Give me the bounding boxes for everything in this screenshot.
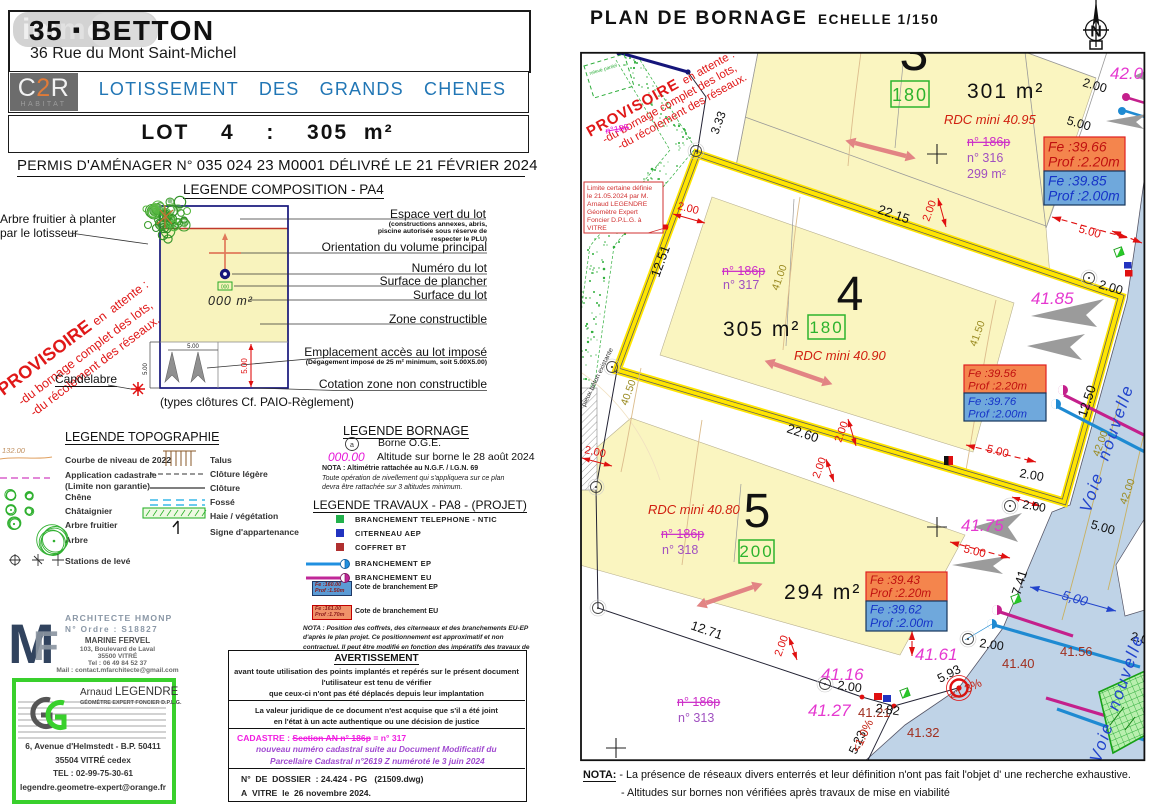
svg-text:5.00: 5.00 (240, 358, 249, 374)
svg-text:41.32: 41.32 (907, 725, 940, 740)
svg-text:200: 200 (739, 542, 773, 561)
svg-text:Fe :39.56: Fe :39.56 (968, 368, 1017, 380)
svg-text:n° 186p: n° 186p (661, 527, 704, 541)
svg-text:pieux béton existante: pieux béton existante (581, 347, 616, 408)
svg-text:2.00: 2.00 (979, 636, 1005, 653)
svg-text:RDC mini 40.80: RDC mini 40.80 (648, 502, 741, 517)
svg-text:Prof :2.00m: Prof :2.00m (870, 616, 933, 630)
svg-text:5.00: 5.00 (143, 363, 149, 375)
svg-text:41.75: 41.75 (961, 516, 1004, 535)
svg-text:12.71: 12.71 (689, 618, 725, 643)
svg-text:5.00: 5.00 (962, 543, 987, 560)
svg-text:Prof :2.20m: Prof :2.20m (968, 380, 1027, 392)
svg-text:RDC mini 40.90: RDC mini 40.90 (794, 348, 887, 363)
svg-text:2.00: 2.00 (811, 456, 830, 480)
svg-text:n° 186p: n° 186p (967, 135, 1010, 149)
svg-text:Limite certaine définie: Limite certaine définie (587, 185, 652, 192)
svg-text:2.00: 2.00 (773, 634, 792, 658)
svg-text:Fe :39.43: Fe :39.43 (870, 573, 920, 587)
svg-text:VITRE: VITRE (587, 225, 607, 232)
svg-text:299 m²: 299 m² (967, 167, 1006, 181)
svg-text:N: N (1090, 24, 1102, 41)
svg-text:Arnaud LEGENDRE: Arnaud LEGENDRE (587, 201, 648, 208)
svg-text:5: 5 (744, 485, 771, 538)
svg-text:132.00: 132.00 (2, 446, 26, 455)
svg-text:41.40: 41.40 (1002, 656, 1035, 671)
svg-text:Fe :39.62: Fe :39.62 (870, 603, 922, 617)
svg-text:le 21.05.2024 par M.: le 21.05.2024 par M. (587, 193, 648, 200)
svg-text:180: 180 (892, 85, 928, 105)
svg-text:n° 316: n° 316 (967, 151, 1003, 165)
svg-text:Prof :2.20m: Prof :2.20m (1048, 154, 1120, 170)
svg-text:000: 000 (221, 284, 230, 290)
svg-text:000 m²: 000 m² (208, 294, 253, 308)
svg-text:5.00: 5.00 (187, 344, 199, 350)
svg-text:2.00: 2.00 (1018, 466, 1044, 484)
svg-text:41.61: 41.61 (915, 645, 958, 664)
svg-text:305 m²: 305 m² (723, 318, 800, 341)
svg-text:n° 318: n° 318 (662, 543, 698, 557)
svg-text:4: 4 (837, 268, 864, 321)
svg-text:41.56: 41.56 (1060, 644, 1093, 659)
svg-text:180: 180 (809, 318, 843, 337)
svg-text:Géomètre Expert: Géomètre Expert (587, 209, 638, 216)
svg-text:2.00: 2.00 (1021, 497, 1047, 515)
svg-text:F: F (33, 622, 59, 669)
svg-text:n° 186p: n° 186p (677, 695, 720, 709)
svg-text:42.0: 42.0 (1110, 64, 1144, 83)
svg-text:41.27: 41.27 (808, 701, 851, 720)
svg-text:n° 313: n° 313 (678, 711, 714, 725)
svg-text:5.00: 5.00 (1077, 223, 1102, 241)
svg-text:n° 186p: n° 186p (722, 264, 765, 278)
svg-text:5.00: 5.00 (985, 443, 1010, 460)
svg-text:Foncier D.P.L.G. à: Foncier D.P.L.G. à (587, 217, 642, 224)
svg-text:5.93: 5.93 (935, 662, 963, 686)
svg-text:Fe :39.66: Fe :39.66 (1048, 138, 1107, 154)
svg-text:12.51: 12.51 (648, 243, 673, 279)
svg-text:Prof :2.00m: Prof :2.00m (1048, 188, 1120, 204)
svg-text:2.00: 2.00 (837, 678, 863, 695)
svg-text:RDC mini 40.95: RDC mini 40.95 (944, 112, 1037, 127)
svg-text:Prof :2.00m: Prof :2.00m (968, 408, 1027, 420)
svg-text:Fe :39.85: Fe :39.85 (1048, 172, 1107, 188)
svg-text:a: a (350, 442, 354, 449)
svg-text:Fe :39.76: Fe :39.76 (968, 396, 1017, 408)
svg-text:294 m²: 294 m² (784, 581, 861, 604)
svg-text:301 m²: 301 m² (967, 80, 1044, 103)
svg-text:relevé partiel: relevé partiel (589, 63, 618, 77)
svg-text:41.85: 41.85 (1031, 289, 1074, 308)
svg-text:n° 317: n° 317 (723, 278, 759, 292)
svg-text:Prof :2.20m: Prof :2.20m (870, 586, 931, 600)
svg-text:3.33: 3.33 (708, 109, 729, 136)
